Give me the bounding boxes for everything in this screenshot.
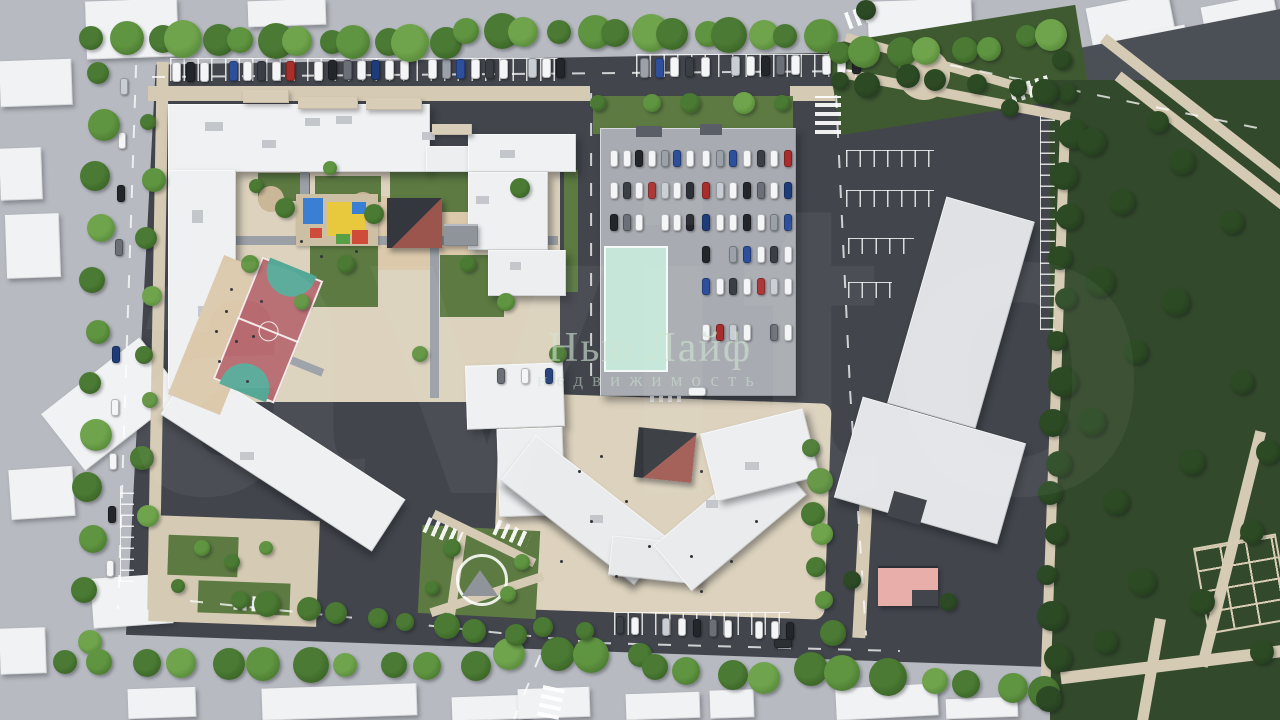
- car: [746, 56, 755, 76]
- crosswalk: [815, 96, 841, 134]
- car: [784, 150, 792, 167]
- tree: [86, 320, 110, 344]
- rooftop-unit: [510, 262, 521, 270]
- car: [770, 278, 778, 295]
- entrance-porch: [298, 97, 358, 109]
- tree: [72, 472, 102, 502]
- tree: [164, 20, 202, 58]
- tree: [484, 13, 520, 49]
- tree: [86, 649, 112, 675]
- car: [106, 560, 114, 577]
- context-area: [1053, 680, 1280, 720]
- car: [428, 59, 437, 79]
- lawn: [826, 5, 1089, 135]
- plaza-circle: [898, 48, 950, 100]
- context-area: [0, 629, 1152, 720]
- person: [578, 470, 581, 473]
- person: [225, 310, 228, 313]
- tree: [1078, 128, 1106, 156]
- west-block-left-wing: [168, 170, 236, 390]
- tree: [413, 652, 441, 680]
- tree: [806, 557, 826, 577]
- person: [640, 470, 643, 473]
- context-roof: [5, 213, 61, 279]
- tree: [794, 652, 828, 686]
- tree: [1057, 83, 1077, 103]
- car: [784, 214, 792, 231]
- park-garden-grid: [1193, 533, 1280, 634]
- car: [631, 617, 639, 635]
- walkway: [446, 528, 467, 618]
- tree: [79, 267, 105, 293]
- car: [716, 182, 724, 199]
- person: [648, 545, 651, 548]
- car: [673, 182, 681, 199]
- car: [673, 150, 681, 167]
- rooftop-unit: [745, 462, 759, 470]
- tree: [820, 620, 846, 646]
- tree: [443, 539, 461, 557]
- tree: [500, 586, 516, 602]
- paving: [228, 158, 560, 402]
- tree: [241, 255, 259, 273]
- tree: [325, 602, 347, 624]
- tree: [142, 168, 166, 192]
- rooftop-unit: [262, 140, 276, 148]
- parking-stall-markings: [848, 282, 892, 298]
- west-block-east-wing-upper: [468, 172, 548, 250]
- context-roof: [1254, 60, 1280, 112]
- parking-stall-markings: [636, 54, 858, 77]
- lawn: [593, 96, 793, 134]
- tree: [1028, 676, 1060, 708]
- tree: [462, 619, 486, 643]
- tree: [1250, 640, 1274, 664]
- context-roof: [835, 683, 939, 720]
- tree: [807, 468, 833, 494]
- tree: [430, 27, 462, 59]
- lawn: [1050, 80, 1280, 720]
- tree: [1162, 288, 1190, 316]
- agency-watermark-subtitle: недвижимость: [520, 370, 780, 392]
- walkway: [236, 236, 558, 245]
- tree: [801, 502, 825, 526]
- commercial-building-low-wing: [834, 397, 1026, 545]
- walkway: [300, 158, 309, 242]
- lawn: [418, 525, 540, 619]
- parking-stall-markings: [848, 238, 914, 254]
- car: [623, 182, 631, 199]
- tree: [952, 37, 978, 63]
- parking-garage: [600, 128, 796, 396]
- court-key-top: [259, 258, 317, 305]
- car: [852, 54, 861, 74]
- tree: [87, 214, 115, 242]
- car: [635, 150, 643, 167]
- car: [635, 214, 643, 231]
- context-roof: [710, 689, 755, 719]
- tree: [149, 25, 177, 53]
- tree: [656, 18, 688, 50]
- person: [615, 575, 618, 578]
- context-roof: [248, 0, 327, 27]
- playground-equipment: [327, 202, 365, 236]
- playground-equipment: [303, 198, 323, 224]
- car: [200, 62, 209, 82]
- person: [218, 360, 221, 363]
- agency-watermark: Нью Лайф недвижимость: [520, 326, 780, 392]
- person: [700, 470, 703, 473]
- tree: [130, 446, 154, 470]
- tree: [282, 26, 312, 56]
- walkway: [1197, 430, 1266, 667]
- car: [662, 618, 670, 636]
- car: [731, 56, 740, 76]
- car: [688, 387, 706, 396]
- car: [743, 278, 751, 295]
- plaza-arc: [456, 554, 508, 606]
- paving: [147, 62, 169, 610]
- car: [716, 324, 724, 341]
- car: [702, 182, 710, 199]
- pink-building: [878, 566, 938, 606]
- car: [702, 214, 710, 231]
- person: [320, 255, 323, 258]
- car: [343, 60, 352, 80]
- context-roof: [946, 697, 1019, 720]
- lane-divider: [513, 655, 541, 720]
- tree: [912, 37, 940, 65]
- car: [757, 278, 765, 295]
- pavement-layer: [0, 0, 1280, 720]
- tree: [323, 161, 337, 175]
- rooftop-unit: [476, 196, 489, 204]
- cars-layer: [0, 0, 1280, 720]
- tree: [1179, 449, 1205, 475]
- tree: [337, 255, 355, 273]
- car: [635, 182, 643, 199]
- person: [246, 380, 249, 383]
- car: [686, 150, 694, 167]
- car: [385, 60, 394, 80]
- car: [243, 61, 252, 81]
- car: [786, 622, 794, 640]
- person: [690, 555, 693, 558]
- tree: [733, 92, 755, 114]
- tree: [87, 62, 109, 84]
- context-roof: [1146, 24, 1191, 61]
- car: [702, 278, 710, 295]
- car: [702, 246, 710, 263]
- car: [640, 58, 649, 78]
- car: [328, 60, 337, 80]
- tree: [71, 577, 97, 603]
- tree: [998, 673, 1028, 703]
- car: [186, 62, 195, 82]
- car: [286, 61, 295, 81]
- tree: [967, 74, 987, 94]
- tree: [460, 256, 476, 272]
- path-layer: [0, 0, 1280, 720]
- car: [661, 150, 669, 167]
- tree: [601, 19, 629, 47]
- tree: [1048, 367, 1078, 397]
- walkway: [839, 68, 1071, 122]
- context-roof: [127, 687, 196, 719]
- tree: [869, 658, 907, 696]
- tree: [829, 42, 851, 64]
- car: [791, 55, 800, 75]
- car: [770, 246, 778, 263]
- car: [648, 150, 656, 167]
- tree: [133, 649, 161, 677]
- buildings-layer: [0, 0, 1280, 720]
- kindergarten-roof: [387, 198, 442, 248]
- car: [661, 182, 669, 199]
- trees-layer: [0, 0, 1280, 720]
- walkway: [1040, 118, 1071, 706]
- car: [757, 150, 765, 167]
- person: [755, 520, 758, 523]
- car: [757, 182, 765, 199]
- rooftop-unit: [706, 500, 718, 508]
- tree: [672, 657, 700, 685]
- car: [686, 214, 694, 231]
- amenities-layer: [0, 0, 1280, 720]
- tree: [1109, 189, 1135, 215]
- tree: [320, 30, 344, 54]
- road-markings-layer: [0, 0, 1280, 720]
- parking-stall-markings: [846, 150, 934, 167]
- car: [400, 60, 409, 80]
- car: [776, 55, 785, 75]
- rooftop-unit: [700, 124, 722, 135]
- tree: [137, 505, 159, 527]
- car: [771, 621, 779, 639]
- tree: [628, 643, 652, 667]
- tree: [78, 630, 102, 654]
- tree: [140, 114, 156, 130]
- tree: [642, 654, 668, 680]
- tree: [1048, 246, 1072, 270]
- tree: [1240, 520, 1264, 544]
- tree: [275, 198, 295, 218]
- entrance-porch: [366, 98, 422, 110]
- car: [117, 185, 125, 202]
- tree: [1046, 451, 1072, 477]
- person: [600, 455, 603, 458]
- person: [560, 560, 563, 563]
- lane-divider: [849, 391, 867, 635]
- tree: [297, 597, 321, 621]
- lawn: [258, 173, 310, 201]
- parking-stall-markings: [170, 58, 560, 81]
- tree: [1085, 267, 1115, 297]
- car: [471, 59, 480, 79]
- playground: [296, 194, 378, 246]
- person: [664, 432, 667, 435]
- tree: [142, 392, 158, 408]
- tree: [246, 647, 280, 681]
- basketball-court: [213, 256, 324, 403]
- south-block-connector: [608, 535, 704, 584]
- playground-equipment: [336, 234, 350, 244]
- rooftop-unit: [240, 452, 254, 460]
- tree: [952, 670, 980, 698]
- rooftop-unit: [305, 118, 320, 126]
- tree: [1094, 630, 1118, 654]
- tree: [1036, 686, 1062, 712]
- context-area: [0, 0, 160, 720]
- car: [761, 56, 770, 76]
- tree: [259, 541, 273, 555]
- tree: [578, 15, 612, 49]
- lane-divider: [835, 95, 851, 391]
- tree: [924, 69, 946, 91]
- pink-building-notch: [912, 590, 938, 606]
- tree: [1078, 408, 1106, 436]
- tree: [1256, 440, 1280, 464]
- car: [661, 214, 669, 231]
- car: [616, 616, 624, 634]
- car: [784, 182, 792, 199]
- tree: [497, 293, 515, 311]
- crosswalk: [650, 384, 686, 402]
- tree: [815, 591, 833, 609]
- context-roof: [0, 147, 43, 200]
- plaza-circle: [350, 192, 376, 218]
- context-roof: [626, 692, 701, 720]
- south-block-northeast-wing: [700, 408, 820, 502]
- playground-equipment: [310, 228, 322, 238]
- car: [770, 324, 778, 341]
- context-roof: [1086, 0, 1179, 62]
- car: [257, 61, 266, 81]
- parking-stall-markings: [846, 190, 934, 207]
- car: [118, 132, 126, 149]
- car: [743, 324, 751, 341]
- tree: [1037, 601, 1067, 631]
- tree: [434, 613, 460, 639]
- context-roof: [85, 0, 179, 60]
- car: [729, 324, 737, 341]
- brand-watermark: avito: [0, 130, 1280, 560]
- tree: [1169, 149, 1195, 175]
- tree: [1038, 481, 1062, 505]
- court-key-bottom: [219, 356, 277, 403]
- car: [108, 506, 116, 523]
- car: [456, 59, 465, 79]
- rooftop-unit: [198, 306, 209, 317]
- lane-divider: [190, 600, 598, 644]
- car: [716, 214, 724, 231]
- crosswalk: [492, 519, 531, 548]
- plaza-circle: [258, 186, 284, 212]
- tree: [368, 608, 388, 628]
- car: [623, 150, 631, 167]
- car: [693, 619, 701, 637]
- west-block-southeast-wing-b: [496, 427, 565, 517]
- tree: [549, 345, 567, 363]
- tree: [887, 37, 917, 67]
- tree: [848, 36, 880, 68]
- walkway: [430, 246, 439, 398]
- agency-watermark-title: Нью Лайф: [520, 326, 780, 370]
- car: [784, 324, 792, 341]
- lawn: [390, 172, 470, 212]
- parking-stall-markings: [1040, 116, 1055, 330]
- tree: [1128, 568, 1156, 596]
- tree: [643, 94, 661, 112]
- car: [610, 150, 618, 167]
- west-block-southwest-wing: [160, 362, 405, 551]
- south-block-west-arm: [500, 435, 670, 585]
- lawn-layer: [0, 0, 1280, 720]
- walkway: [429, 572, 544, 617]
- tree: [1032, 79, 1058, 105]
- tree: [213, 648, 245, 680]
- car: [729, 182, 737, 199]
- rooftop-unit: [590, 515, 603, 523]
- tree: [258, 23, 294, 59]
- paving: [790, 86, 866, 101]
- rooftop-unit: [636, 126, 662, 137]
- car: [743, 214, 751, 231]
- person: [260, 300, 263, 303]
- tree: [1230, 370, 1254, 394]
- tree: [336, 25, 370, 59]
- car: [648, 182, 656, 199]
- car: [784, 246, 792, 263]
- tree: [227, 27, 253, 53]
- paving: [375, 196, 471, 270]
- walkway: [1137, 618, 1166, 720]
- tree: [364, 204, 384, 224]
- person: [700, 590, 703, 593]
- tree: [811, 523, 833, 545]
- car: [822, 55, 831, 75]
- tree: [80, 419, 112, 451]
- car: [770, 150, 778, 167]
- walkway: [845, 33, 1038, 96]
- context-roof: [90, 573, 173, 628]
- car: [702, 324, 710, 341]
- tree: [749, 20, 779, 50]
- south-block-east-arm: [653, 449, 806, 591]
- lawn: [315, 176, 381, 202]
- tree: [843, 571, 861, 589]
- lane-divider: [598, 642, 900, 652]
- car: [729, 214, 737, 231]
- car: [716, 278, 724, 295]
- tree: [1009, 79, 1027, 97]
- person: [300, 240, 303, 243]
- court-center-circle: [256, 318, 282, 344]
- people-layer: [0, 0, 1280, 720]
- tree: [508, 17, 538, 47]
- tree: [453, 18, 479, 44]
- rooftop-unit: [205, 122, 223, 131]
- tree: [711, 17, 747, 53]
- tree: [1039, 409, 1067, 437]
- kindergarten-annex: [444, 224, 478, 246]
- context-roof: [1201, 0, 1280, 70]
- tree: [293, 647, 329, 683]
- car: [729, 246, 737, 263]
- tree: [1016, 25, 1038, 47]
- crosswalk: [1008, 74, 1055, 103]
- walkway: [432, 510, 537, 567]
